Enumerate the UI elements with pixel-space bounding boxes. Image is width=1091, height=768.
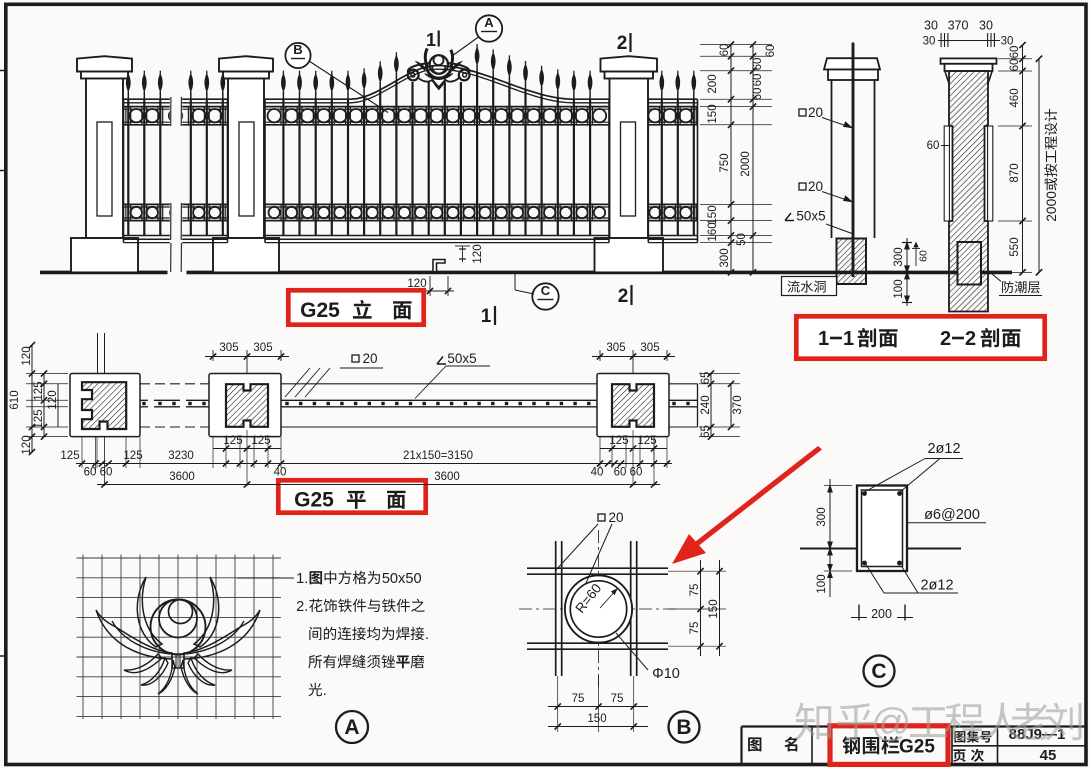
svg-text:ø6@200: ø6@200: [924, 507, 980, 523]
svg-text:370: 370: [732, 395, 744, 414]
svg-text:370: 370: [948, 19, 969, 33]
svg-text:60: 60: [765, 45, 777, 58]
svg-text:125: 125: [33, 409, 45, 428]
svg-text:60: 60: [917, 250, 929, 262]
svg-text:125: 125: [123, 450, 142, 462]
svg-text:40: 40: [274, 467, 287, 479]
svg-text:50: 50: [736, 233, 748, 246]
svg-text:1: 1: [843, 328, 854, 350]
svg-text:1: 1: [481, 306, 492, 327]
svg-text:A: A: [484, 15, 494, 30]
svg-text:60: 60: [752, 58, 764, 71]
svg-text:60: 60: [1009, 46, 1021, 59]
svg-text:2: 2: [618, 286, 629, 307]
svg-text:65: 65: [700, 425, 712, 438]
svg-text:125: 125: [609, 435, 628, 447]
svg-text:60: 60: [927, 140, 940, 152]
svg-text:100: 100: [893, 279, 905, 298]
svg-text:120: 120: [47, 390, 59, 409]
svg-text:B: B: [293, 42, 302, 57]
svg-text:1: 1: [818, 328, 829, 350]
svg-text:21x150=3150: 21x150=3150: [403, 450, 473, 462]
svg-text:60: 60: [752, 74, 764, 87]
svg-text:610: 610: [9, 390, 21, 409]
svg-text:2: 2: [940, 328, 951, 350]
svg-text:150: 150: [708, 599, 720, 618]
svg-text:65: 65: [700, 372, 712, 385]
svg-text:3600: 3600: [169, 471, 195, 483]
svg-text:B: B: [676, 716, 691, 739]
svg-text:45: 45: [1040, 747, 1057, 764]
svg-text:150: 150: [707, 104, 719, 123]
svg-text:50x5: 50x5: [447, 351, 476, 366]
svg-text:C: C: [541, 283, 551, 298]
svg-text:240: 240: [700, 395, 712, 414]
svg-text:30: 30: [923, 36, 936, 48]
svg-text:75: 75: [689, 584, 701, 597]
svg-text:305: 305: [640, 342, 659, 354]
svg-text:60: 60: [84, 467, 97, 479]
svg-text:A: A: [344, 716, 359, 739]
svg-text:.: .: [425, 627, 429, 643]
svg-text:G25: G25: [294, 489, 334, 512]
svg-text:60: 60: [614, 467, 627, 479]
svg-text:125: 125: [223, 435, 242, 447]
svg-text:40: 40: [591, 467, 604, 479]
svg-text:120: 120: [21, 435, 33, 454]
svg-text:50x50: 50x50: [382, 571, 422, 587]
svg-text:20: 20: [808, 179, 823, 194]
svg-text:125: 125: [637, 435, 656, 447]
svg-text:2000: 2000: [1044, 191, 1059, 222]
svg-text:305: 305: [219, 342, 238, 354]
svg-text:G25: G25: [300, 299, 340, 322]
svg-text:160: 160: [707, 222, 719, 241]
svg-text:305: 305: [253, 342, 272, 354]
svg-text:120: 120: [21, 346, 33, 365]
svg-text:300: 300: [816, 507, 828, 526]
svg-text:3600: 3600: [434, 471, 460, 483]
svg-text:@: @: [871, 701, 912, 745]
svg-text:2ø12: 2ø12: [927, 441, 960, 457]
svg-text:3230: 3230: [168, 450, 194, 462]
svg-text:75: 75: [611, 693, 624, 705]
svg-text:2000: 2000: [740, 151, 752, 177]
svg-text:75: 75: [572, 693, 585, 705]
svg-text:60: 60: [719, 44, 731, 57]
svg-text:200: 200: [707, 74, 719, 93]
svg-text:300: 300: [893, 247, 905, 266]
svg-text:60: 60: [752, 88, 764, 101]
svg-text:30: 30: [924, 19, 938, 33]
svg-text:30: 30: [979, 19, 993, 33]
svg-text:.: .: [323, 683, 327, 699]
svg-text:120: 120: [472, 244, 484, 263]
svg-text:20: 20: [362, 351, 377, 366]
svg-text:750: 750: [719, 153, 731, 172]
svg-text:125: 125: [251, 435, 270, 447]
svg-text:2.: 2.: [296, 599, 308, 615]
svg-text:2: 2: [617, 33, 628, 54]
svg-text:100: 100: [816, 574, 828, 593]
svg-text:2ø12: 2ø12: [920, 578, 953, 594]
svg-text:C: C: [871, 660, 886, 683]
svg-text:60: 60: [1009, 59, 1021, 72]
svg-text:1: 1: [426, 30, 436, 50]
svg-text:305: 305: [606, 342, 625, 354]
svg-text:50x5: 50x5: [796, 209, 825, 224]
svg-text:300: 300: [719, 248, 731, 267]
svg-text:20: 20: [608, 510, 623, 525]
svg-text:460: 460: [1009, 88, 1021, 107]
svg-text:200: 200: [871, 607, 892, 621]
svg-text:20: 20: [808, 105, 823, 120]
svg-text:125: 125: [60, 450, 79, 462]
svg-text:1.: 1.: [296, 571, 308, 587]
svg-text:150: 150: [707, 205, 719, 224]
svg-text:Φ10: Φ10: [652, 666, 680, 682]
svg-text:75: 75: [689, 622, 701, 635]
svg-text:870: 870: [1009, 163, 1021, 182]
svg-text:125: 125: [33, 381, 45, 400]
svg-text:550: 550: [1009, 237, 1021, 256]
svg-text:60: 60: [630, 467, 643, 479]
svg-text:60: 60: [100, 467, 113, 479]
svg-text:150: 150: [587, 713, 606, 725]
svg-text:2: 2: [965, 328, 976, 350]
